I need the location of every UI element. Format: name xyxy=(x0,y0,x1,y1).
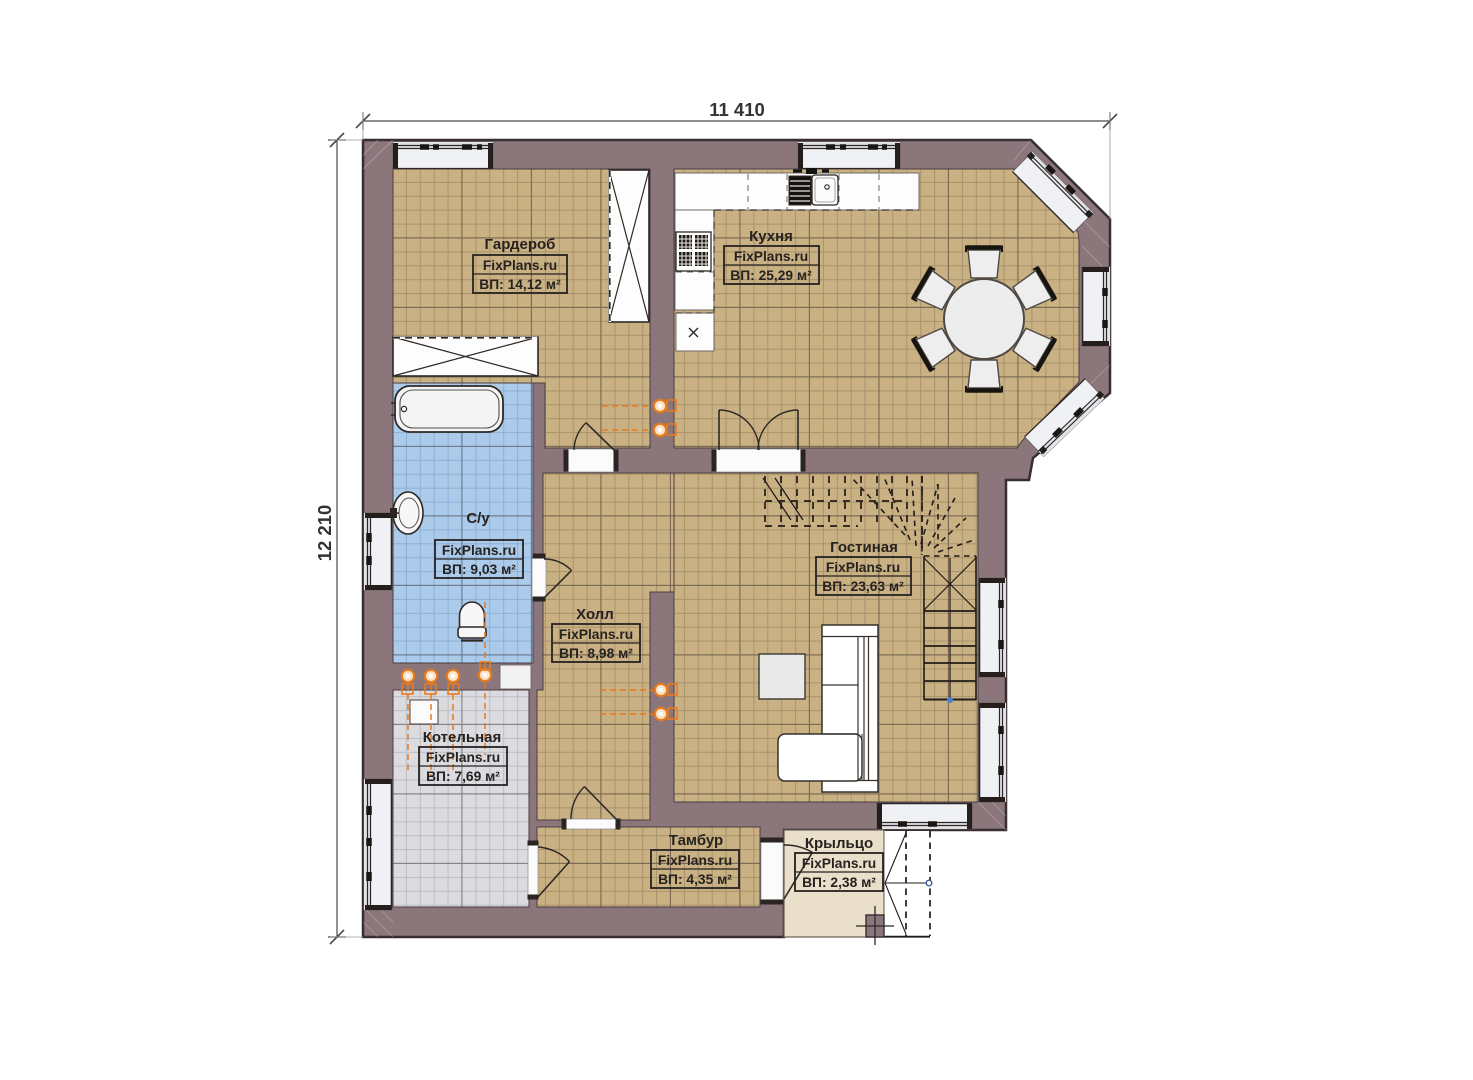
svg-text:ВП: 14,12 м²: ВП: 14,12 м² xyxy=(479,277,561,292)
svg-text:FixPlans.ru: FixPlans.ru xyxy=(802,856,876,871)
svg-text:FixPlans.ru: FixPlans.ru xyxy=(734,249,808,264)
svg-text:Кухня: Кухня xyxy=(749,228,793,245)
svg-text:ВП: 23,63 м²: ВП: 23,63 м² xyxy=(822,579,904,594)
svg-text:ВП: 8,98 м²: ВП: 8,98 м² xyxy=(559,646,633,661)
svg-text:FixPlans.ru: FixPlans.ru xyxy=(658,853,732,868)
svg-text:ВП: 4,35 м²: ВП: 4,35 м² xyxy=(658,872,732,887)
svg-text:ВП: 2,38 м²: ВП: 2,38 м² xyxy=(802,875,876,890)
svg-text:FixPlans.ru: FixPlans.ru xyxy=(426,750,500,765)
svg-text:FixPlans.ru: FixPlans.ru xyxy=(559,627,633,642)
svg-text:11 410: 11 410 xyxy=(709,99,765,120)
svg-text:ВП: 25,29 м²: ВП: 25,29 м² xyxy=(730,268,812,283)
svg-text:Крыльцо: Крыльцо xyxy=(805,835,873,852)
svg-text:ВП: 7,69 м²: ВП: 7,69 м² xyxy=(426,769,500,784)
svg-text:Тамбур: Тамбур xyxy=(669,832,723,849)
svg-text:FixPlans.ru: FixPlans.ru xyxy=(826,560,900,575)
svg-text:FixPlans.ru: FixPlans.ru xyxy=(442,543,516,558)
svg-text:12 210: 12 210 xyxy=(314,505,335,562)
svg-text:Гардероб: Гардероб xyxy=(485,236,556,253)
svg-text:ВП: 9,03 м²: ВП: 9,03 м² xyxy=(442,562,516,577)
svg-text:Гостиная: Гостиная xyxy=(830,539,898,556)
svg-text:FixPlans.ru: FixPlans.ru xyxy=(483,258,557,273)
svg-text:С/у: С/у xyxy=(466,510,490,527)
svg-text:Холл: Холл xyxy=(576,606,614,623)
svg-text:Котельная: Котельная xyxy=(423,729,502,746)
